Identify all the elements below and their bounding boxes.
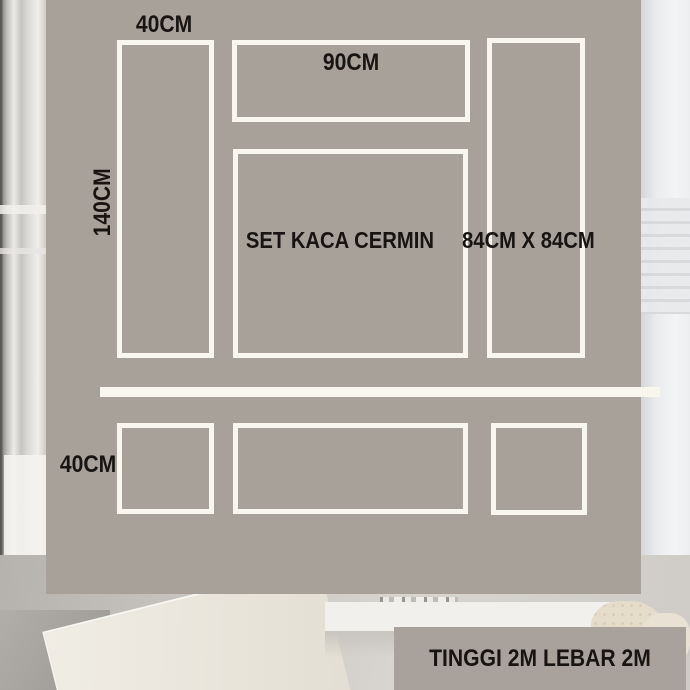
label-text: 40CM xyxy=(60,452,116,477)
label-text: TINGGI 2M LEBAR 2M xyxy=(429,646,651,671)
wall-molding-lines xyxy=(641,198,690,314)
label-bottom-panel-height: 40CM xyxy=(40,452,136,477)
label-text: 40CM xyxy=(136,12,192,37)
label-mirror-set: SET KACA CERMIN 84CM X 84CM xyxy=(233,227,468,253)
label-text: 90CM xyxy=(323,50,379,75)
label-top-panel-width: 40CM xyxy=(116,12,212,37)
label-text: 140CM xyxy=(90,168,115,236)
dimension-diagram-overlay: 40CM 90CM 140CM SET KACA CERMIN 84CM X 8… xyxy=(46,0,641,594)
mirror-set-line2: 84CM X 84CM xyxy=(462,227,595,253)
label-left-panel-height: 140CM xyxy=(90,132,114,272)
panel-mirror-center xyxy=(233,149,468,358)
panel-top-left xyxy=(117,40,214,358)
overall-size-label: TINGGI 2M LEBAR 2M xyxy=(414,646,666,671)
molding-joint-line xyxy=(0,248,46,254)
panel-top-right xyxy=(487,38,585,358)
panel-bottom-center xyxy=(233,423,468,514)
mirror-set-line1: SET KACA CERMIN xyxy=(246,227,434,253)
overall-size-badge: TINGGI 2M LEBAR 2M xyxy=(394,627,686,690)
chair-rail-divider xyxy=(100,387,660,397)
molding-joint-line xyxy=(0,205,46,214)
label-top-center-panel: 90CM xyxy=(232,50,470,75)
product-dimension-image: 40CM 90CM 140CM SET KACA CERMIN 84CM X 8… xyxy=(0,0,690,690)
panel-bottom-right xyxy=(491,423,587,515)
